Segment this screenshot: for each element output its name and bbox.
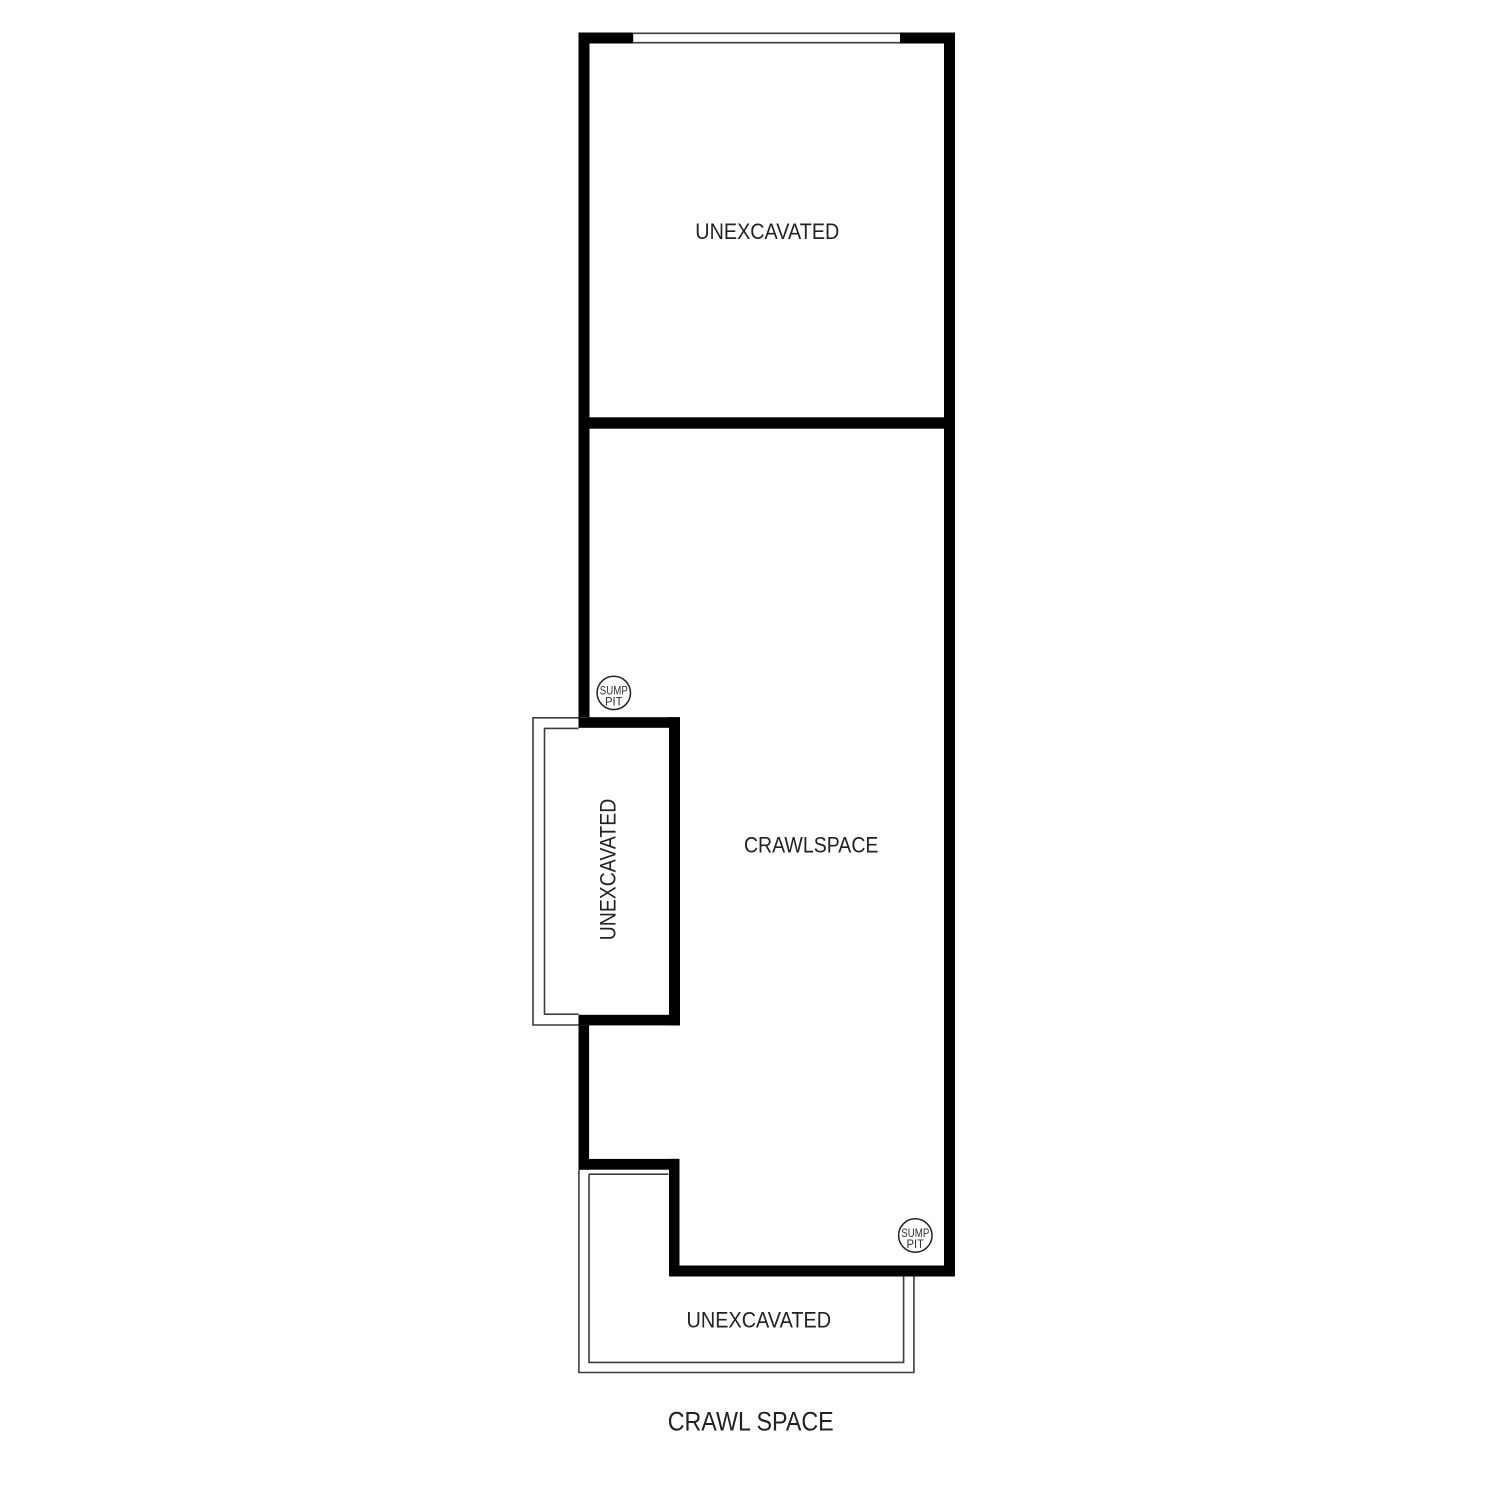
- svg-text:PIT: PIT: [605, 695, 623, 709]
- svg-text:CRAWLSPACE: CRAWLSPACE: [744, 832, 879, 857]
- svg-text:PIT: PIT: [907, 1237, 925, 1251]
- svg-text:UNEXCAVATED: UNEXCAVATED: [595, 799, 620, 941]
- svg-text:UNEXCAVATED: UNEXCAVATED: [695, 219, 839, 244]
- svg-text:CRAWL SPACE: CRAWL SPACE: [668, 1406, 834, 1436]
- svg-text:UNEXCAVATED: UNEXCAVATED: [687, 1307, 832, 1332]
